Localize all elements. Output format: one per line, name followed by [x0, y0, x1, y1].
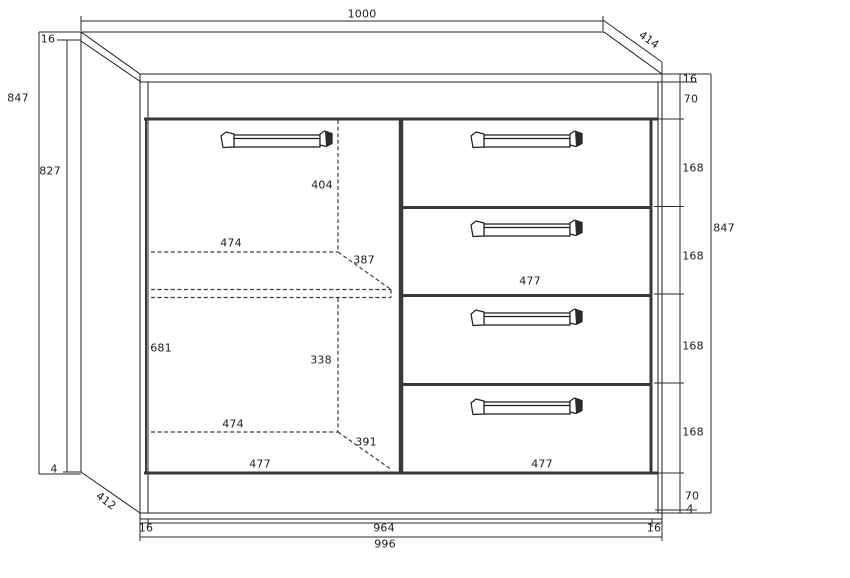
dim-top-width: 1000	[348, 9, 377, 20]
dim-bottom-side-left: 16	[139, 523, 153, 534]
dim-right-top-thickness: 16	[683, 74, 697, 85]
dim-shelf-depth-top: 387	[353, 255, 375, 266]
drawer-handle-1	[471, 131, 582, 148]
dim-right-drawer4: 168	[682, 427, 704, 438]
dim-shelf-depth-bottom: 391	[355, 437, 377, 448]
dim-handle-top-height: 404	[311, 180, 333, 191]
dim-inner-width-top: 474	[220, 238, 242, 249]
front-frame-lines	[144, 119, 658, 473]
dim-height-total-right: 847	[713, 223, 735, 234]
dim-right-drawer1: 168	[682, 163, 704, 174]
dim-door-height: 681	[150, 343, 172, 354]
dashed-interior-guides	[151, 120, 392, 470]
dim-top-thickness: 16	[41, 34, 55, 45]
drawer-handle-3	[471, 309, 582, 326]
dim-height-total-left: 847	[7, 93, 29, 104]
drawer-handle-2	[471, 220, 582, 237]
dim-drawer-width-mid: 477	[519, 276, 541, 287]
drawer-handle-4	[471, 398, 582, 415]
dim-bottom-inner-width: 964	[373, 523, 395, 534]
door-handle	[221, 131, 332, 148]
dim-right-top-rail: 70	[684, 94, 698, 105]
cabinet-dimension-drawing: 1000 414 16 847 827 4 412 404 474 387 68…	[0, 0, 850, 578]
dim-bottom-side-right: 16	[647, 523, 661, 534]
dim-inner-width-bottom: 474	[222, 419, 244, 430]
cabinet-line-art	[0, 0, 850, 578]
dim-handle-bottom-height: 338	[310, 355, 332, 366]
dim-right-drawer2: 168	[682, 251, 704, 262]
dim-side-height: 827	[39, 166, 61, 177]
dim-drawer-width-bottom: 477	[531, 459, 553, 470]
dim-right-drawer3: 168	[682, 341, 704, 352]
dim-right-bottom-rail: 70	[685, 491, 699, 502]
dim-door-width: 477	[249, 459, 271, 470]
dim-bottom-outer-width: 996	[374, 539, 396, 550]
dim-bottom-gap-left: 4	[50, 464, 57, 475]
dim-right-bottom-gap: 4	[686, 504, 693, 515]
